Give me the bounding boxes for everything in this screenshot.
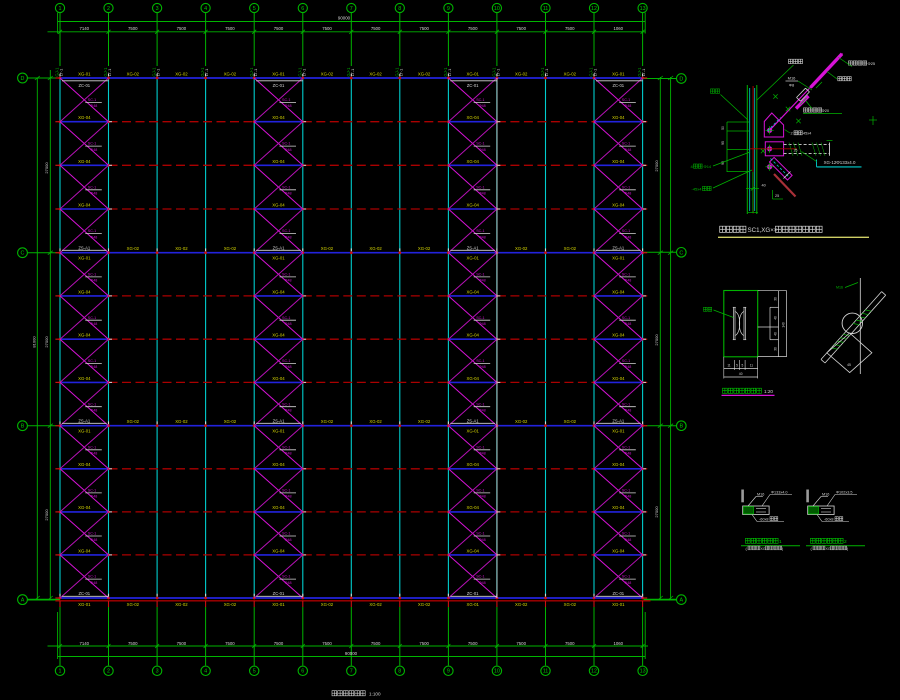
svg-text:SC-1: SC-1 [282,445,290,449]
svg-text:SC-1: SC-1 [88,402,96,406]
svg-text:): ) [847,547,849,551]
svg-text:SC-1: SC-1 [622,229,630,233]
svg-text:ZS-A1: ZS-A1 [273,418,286,423]
svg-text:SC-1: SC-1 [282,185,290,189]
svg-text:SC-1: SC-1 [622,359,630,363]
svg-text:Φ48: Φ48 [624,452,631,456]
svg-text:SC-1: SC-1 [476,445,484,449]
svg-text:XG-02: XG-02 [127,602,140,607]
svg-text:27000: 27000 [654,506,659,518]
svg-text:XG-01: XG-01 [612,602,625,607]
svg-text:Φ48: Φ48 [479,235,486,239]
svg-text:B: B [679,424,683,430]
svg-text:LT-1: LT-1 [253,68,258,76]
svg-text:27000: 27000 [44,509,49,521]
svg-text:XG-04: XG-04 [466,548,479,553]
svg-text:11: 11 [543,669,549,675]
svg-text:95: 95 [721,141,725,145]
svg-text:Φ48: Φ48 [479,495,486,499]
svg-text:SC-1: SC-1 [282,359,290,363]
svg-text:Φ48: Φ48 [90,279,97,283]
svg-text:XG-04: XG-04 [466,115,479,120]
svg-text:SC-1: SC-1 [622,445,630,449]
svg-text:SC-1: SC-1 [88,359,96,363]
svg-text:XG-02: XG-02 [369,246,382,251]
svg-text:SC-1: SC-1 [476,98,484,102]
svg-text:Φ48: Φ48 [624,104,631,108]
svg-text:LT-1: LT-1 [593,68,598,76]
svg-text:XG-04: XG-04 [272,376,285,381]
svg-text:Φ8: Φ8 [789,82,795,87]
svg-text:C: C [679,250,683,256]
svg-text:7500: 7500 [371,641,381,646]
svg-text:XG-04: XG-04 [78,462,91,467]
svg-text:SC-1: SC-1 [88,98,96,102]
svg-text:SC-1: SC-1 [88,445,96,449]
svg-text:D: D [679,77,683,83]
svg-text:9: 9 [447,669,450,675]
svg-text:XG-02: XG-02 [175,419,188,424]
svg-text:XG-02: XG-02 [175,71,188,76]
svg-text:XG-01: XG-01 [272,602,285,607]
svg-text:XG-02: XG-02 [418,246,431,251]
svg-text:9: 9 [447,6,450,12]
svg-text:Φ25: Φ25 [868,61,876,66]
svg-text:27000: 27000 [654,160,659,172]
svg-text:SC-1: SC-1 [88,273,96,277]
svg-text:XG-04: XG-04 [78,115,91,120]
svg-text:SC-1: SC-1 [476,575,484,579]
svg-text:Φ48: Φ48 [90,192,97,196]
svg-text:XG-01: XG-01 [78,602,91,607]
svg-text:ZS-A1: ZS-A1 [78,245,91,250]
svg-text:SC-1: SC-1 [476,185,484,189]
svg-text:XG-02: XG-02 [564,246,577,251]
svg-text:SC-1: SC-1 [476,316,484,320]
svg-text:XG-02: XG-02 [564,419,577,424]
svg-text:7500: 7500 [468,26,478,31]
svg-text:90000: 90000 [345,651,358,656]
svg-text:Φ48: Φ48 [624,148,631,152]
svg-text:5: 5 [742,364,744,368]
svg-text:SC-1: SC-1 [476,142,484,146]
svg-text:SC-1: SC-1 [476,532,484,536]
svg-text:Φ48: Φ48 [285,148,292,152]
svg-text:XG-04: XG-04 [272,333,285,338]
svg-text:XG-02: XG-02 [321,71,334,76]
svg-text:Φ14: Φ14 [704,164,712,169]
svg-text:13: 13 [640,669,646,675]
svg-text:C: C [21,251,25,257]
svg-text:1060: 1060 [614,641,624,646]
svg-text:Φ48: Φ48 [285,279,292,283]
svg-text:SC-1: SC-1 [282,273,290,277]
svg-text:11: 11 [727,364,731,368]
svg-text:Φ48: Φ48 [285,235,292,239]
svg-text:Φ48: Φ48 [479,452,486,456]
svg-text:SC-1: SC-1 [88,229,96,233]
svg-text:140: 140 [781,322,785,328]
svg-text:4: 4 [204,6,207,12]
svg-text:XG-02: XG-02 [224,602,237,607]
svg-text:SC-1: SC-1 [622,142,630,146]
svg-text:LT-1: LT-1 [447,68,452,76]
svg-text:7500: 7500 [468,641,478,646]
svg-text:Φ48: Φ48 [90,452,97,456]
svg-text:7500: 7500 [128,641,138,646]
svg-text:LT-1: LT-1 [398,68,403,76]
svg-text:SC-1: SC-1 [88,532,96,536]
svg-text:Φ48: Φ48 [479,192,486,196]
svg-text:1:20: 1:20 [764,389,773,394]
svg-text:XG-04: XG-04 [78,289,91,294]
svg-text:XG-02: XG-02 [321,602,334,607]
svg-text:SC1,XG××: SC1,XG×× [748,227,778,234]
svg-text:7500: 7500 [516,641,526,646]
svg-text:ZC-01: ZC-01 [612,83,624,88]
svg-text:XG-04: XG-04 [78,202,91,207]
svg-text:SC-1: SC-1 [622,532,630,536]
svg-text:Φ48: Φ48 [285,365,292,369]
svg-text:B: B [21,424,25,430]
svg-text:7500: 7500 [274,26,284,31]
svg-text:10: 10 [494,669,500,675]
svg-text:2: 2 [107,6,110,12]
svg-text:XG-02: XG-02 [515,419,528,424]
svg-text:7500: 7500 [322,641,332,646]
svg-text:SC-1: SC-1 [476,489,484,493]
svg-text:XG-04: XG-04 [272,115,285,120]
svg-text:Φ48: Φ48 [285,409,292,413]
svg-text:7500: 7500 [177,26,187,31]
svg-text:Φ48: Φ48 [624,235,631,239]
svg-text:Φ48: Φ48 [479,148,486,152]
svg-text:XG-02: XG-02 [224,419,237,424]
svg-text:3: 3 [156,669,159,675]
svg-text:XG-04: XG-04 [78,333,91,338]
svg-text:XG-02: XG-02 [515,602,528,607]
svg-text:7500: 7500 [225,26,235,31]
svg-text:SC-1: SC-1 [622,185,630,189]
svg-text:XG-04: XG-04 [612,115,625,120]
svg-text:): ) [782,547,784,551]
svg-text:XG-01: XG-01 [272,428,285,433]
svg-text:Φ48: Φ48 [624,322,631,326]
svg-text:Φ48: Φ48 [90,409,97,413]
svg-text:30: 30 [774,347,778,351]
svg-text:25: 25 [775,194,779,198]
svg-text:XG-01: XG-01 [272,255,285,260]
svg-text:7500: 7500 [419,641,429,646]
svg-text:Φ48: Φ48 [624,192,631,196]
svg-text:Φ48: Φ48 [90,495,97,499]
svg-text:40: 40 [739,372,743,376]
svg-text:Φ48: Φ48 [90,538,97,542]
svg-text:XG-04: XG-04 [272,289,285,294]
svg-text:SC-1: SC-1 [476,402,484,406]
svg-text:XG-02: XG-02 [418,71,431,76]
svg-text:ZS-A1: ZS-A1 [612,418,625,423]
svg-text:7500: 7500 [565,641,575,646]
svg-text:XG-04: XG-04 [272,548,285,553]
svg-text:SC-1: SC-1 [476,229,484,233]
svg-text:11: 11 [750,364,754,368]
svg-text:10: 10 [494,6,500,12]
svg-text:-60x8: -60x8 [759,517,769,521]
svg-text:XG-04: XG-04 [466,289,479,294]
svg-text:SC-1: SC-1 [622,316,630,320]
svg-text:SC-1: SC-1 [88,575,96,579]
svg-text:LT-1: LT-1 [641,68,646,76]
svg-text:81000: 81000 [31,336,36,348]
svg-text:7: 7 [350,6,353,12]
svg-text:50: 50 [721,126,725,130]
svg-text:ZS-A1: ZS-A1 [467,418,480,423]
svg-text:Φ48: Φ48 [285,538,292,542]
svg-text:2: 2 [844,539,847,545]
svg-text:SC-1: SC-1 [622,402,630,406]
svg-text:M16: M16 [836,286,843,290]
svg-text:SC-1: SC-1 [622,98,630,102]
svg-text:SC-1: SC-1 [622,575,630,579]
svg-text:27000: 27000 [44,336,49,348]
svg-text:XG-04: XG-04 [612,159,625,164]
svg-text:SC-1: SC-1 [282,316,290,320]
svg-text:XG-04: XG-04 [272,462,285,467]
svg-text:SC-1: SC-1 [282,142,290,146]
svg-text:7500: 7500 [565,26,575,31]
svg-text:XG-04: XG-04 [466,202,479,207]
svg-text:LT-1: LT-1 [350,68,355,76]
svg-text:XG-04: XG-04 [612,202,625,207]
svg-text:SC-1: SC-1 [282,575,290,579]
svg-text:5: 5 [253,6,256,12]
svg-text:XG-04: XG-04 [272,159,285,164]
svg-text:LT-1: LT-1 [59,68,64,76]
svg-text:8: 8 [398,669,401,675]
svg-text:4: 4 [691,164,694,169]
svg-text:A: A [21,598,25,604]
svg-text:ZS-A1: ZS-A1 [78,418,91,423]
svg-text:7140: 7140 [80,26,90,31]
svg-text:Φ102x3.5: Φ102x3.5 [836,490,853,494]
svg-text:XG-02: XG-02 [418,602,431,607]
svg-text:ZC-01: ZC-01 [78,83,90,88]
svg-text:XG-04: XG-04 [612,289,625,294]
svg-text:40: 40 [774,332,778,336]
svg-text:11: 11 [543,6,549,12]
svg-text:-60x8: -60x8 [824,517,834,521]
svg-text:XG-02: XG-02 [564,71,577,76]
svg-text:Φ48: Φ48 [479,538,486,542]
svg-text:Φ20: Φ20 [822,108,830,113]
svg-text:2: 2 [107,669,110,675]
svg-text:Φ48: Φ48 [90,322,97,326]
svg-text:M16: M16 [788,76,797,81]
svg-text:6: 6 [301,6,304,12]
svg-text:4: 4 [204,669,207,675]
svg-text:7500: 7500 [225,641,235,646]
svg-text:XG-04: XG-04 [466,159,479,164]
svg-text:Φ48: Φ48 [624,365,631,369]
svg-text:ZS-A1: ZS-A1 [612,245,625,250]
svg-text:1: 1 [59,6,62,12]
svg-text:XG-04: XG-04 [612,333,625,338]
svg-text:ZC-01: ZC-01 [273,83,285,88]
svg-text:Φ48: Φ48 [479,322,486,326]
svg-text:Φ48: Φ48 [90,365,97,369]
svg-text:Φ48: Φ48 [479,279,486,283]
svg-text:7500: 7500 [274,641,284,646]
svg-text:SC-1: SC-1 [282,402,290,406]
svg-text:45: 45 [847,363,851,367]
svg-text:XG-01: XG-01 [612,71,625,76]
svg-text:Φ48: Φ48 [285,192,292,196]
svg-text:XG-04: XG-04 [466,333,479,338]
svg-text:SC-1: SC-1 [282,489,290,493]
svg-text:XG-01: XG-01 [466,71,479,76]
svg-text:M16: M16 [757,492,764,496]
svg-text:A: A [679,598,683,604]
svg-text:XG-04: XG-04 [466,505,479,510]
svg-text:XG-04: XG-04 [78,159,91,164]
svg-text:XG-02: XG-02 [418,419,431,424]
svg-text:XG-02: XG-02 [127,246,140,251]
svg-text:27000: 27000 [44,162,49,174]
svg-text:7: 7 [350,669,353,675]
svg-text:Φ48: Φ48 [90,235,97,239]
svg-text:Φ48: Φ48 [624,495,631,499]
svg-text:SC-1: SC-1 [88,316,96,320]
svg-text:XG-04: XG-04 [466,462,479,467]
svg-text:SC-1: SC-1 [88,142,96,146]
svg-text:Φ48: Φ48 [90,581,97,585]
svg-text:LT-1: LT-1 [156,68,161,76]
svg-text:7500: 7500 [371,26,381,31]
svg-text:LT-1: LT-1 [301,68,306,76]
svg-text:SC-1: SC-1 [88,185,96,189]
svg-text:XG-01: XG-01 [466,602,479,607]
svg-text:XG-04: XG-04 [272,202,285,207]
svg-text:XG-02: XG-02 [369,71,382,76]
svg-text:7500: 7500 [516,26,526,31]
svg-text:XG-04: XG-04 [612,548,625,553]
svg-text:40: 40 [762,184,766,188]
svg-text:SC-1: SC-1 [282,98,290,102]
svg-text:Φ48: Φ48 [624,538,631,542]
svg-text:XG-01: XG-01 [466,255,479,260]
svg-text:LT-1: LT-1 [544,68,549,76]
svg-text:XG-02: XG-02 [224,71,237,76]
svg-text:LT-1: LT-1 [107,68,112,76]
svg-text:1: 1 [59,669,62,675]
svg-text:XG: XG [761,547,766,551]
svg-text:LT-1: LT-1 [204,68,209,76]
svg-text:XG-02: XG-02 [175,602,188,607]
svg-text:Φ48: Φ48 [624,279,631,283]
svg-text:ZC-01: ZC-01 [467,591,479,596]
svg-text:XG-04: XG-04 [612,376,625,381]
svg-text:Φ48: Φ48 [624,581,631,585]
svg-text:XG-02: XG-02 [321,246,334,251]
svg-text:-45x4: -45x4 [692,186,703,191]
svg-text:90000: 90000 [338,16,351,21]
svg-text:SC-1: SC-1 [282,229,290,233]
svg-text:XG-01: XG-01 [78,428,91,433]
svg-text:SC-1: SC-1 [476,359,484,363]
svg-text:1: 1 [779,539,782,545]
svg-text:ZC-01: ZC-01 [273,591,285,596]
svg-text:M16: M16 [822,492,829,496]
svg-text:Φ48: Φ48 [624,409,631,413]
svg-text:XG-02: XG-02 [127,71,140,76]
svg-text:Φ48: Φ48 [285,495,292,499]
svg-text:ZS-A1: ZS-A1 [467,245,480,250]
svg-text:7140: 7140 [80,641,90,646]
svg-text:Φ48: Φ48 [479,365,486,369]
svg-text:XG-02: XG-02 [224,246,237,251]
svg-text:Φ48: Φ48 [479,409,486,413]
svg-text:XG-02: XG-02 [127,419,140,424]
svg-text:ZS-A1: ZS-A1 [273,245,286,250]
svg-text:2: 2 [791,132,793,136]
svg-text:XG-04: XG-04 [272,505,285,510]
svg-text:XG-01: XG-01 [78,255,91,260]
svg-text:SC-1: SC-1 [282,532,290,536]
svg-text:5: 5 [736,364,738,368]
svg-text:12: 12 [591,6,597,12]
svg-text:7500: 7500 [128,26,138,31]
svg-text:XG-04: XG-04 [466,376,479,381]
svg-text:XG-02: XG-02 [175,246,188,251]
svg-text:13: 13 [640,6,646,12]
svg-text:SC-1: SC-1 [622,489,630,493]
svg-text:XG-02: XG-02 [369,602,382,607]
svg-text:XG-02: XG-02 [369,419,382,424]
svg-text:XG-02: XG-02 [321,419,334,424]
svg-text:Φ48: Φ48 [479,581,486,585]
svg-text:SC-1: SC-1 [88,489,96,493]
svg-text:D: D [21,76,25,82]
svg-text:45x4: 45x4 [803,132,811,136]
svg-text:ZC-01: ZC-01 [467,83,479,88]
svg-text:XG-01: XG-01 [612,255,625,260]
svg-text:Φ48: Φ48 [90,148,97,152]
svg-text:(: ( [746,547,748,551]
svg-text:XG: XG [826,547,831,551]
svg-text:6: 6 [301,669,304,675]
svg-text:Φ133x4.0: Φ133x4.0 [771,490,788,494]
svg-text:7500: 7500 [177,641,187,646]
svg-text:Φ48: Φ48 [285,322,292,326]
svg-text:3: 3 [156,6,159,12]
svg-text:27000: 27000 [654,334,659,346]
svg-text:XG-04: XG-04 [78,505,91,510]
svg-text:XG-02: XG-02 [564,602,577,607]
svg-text:8: 8 [398,6,401,12]
svg-text:1:100: 1:100 [369,691,381,696]
svg-text:ZC-01: ZC-01 [78,591,90,596]
svg-text:25: 25 [794,148,798,152]
svg-text:7500: 7500 [322,26,332,31]
svg-text:7500: 7500 [419,26,429,31]
svg-text:XG-04: XG-04 [78,548,91,553]
svg-text:XG-02: XG-02 [515,246,528,251]
svg-text:XG-04: XG-04 [612,462,625,467]
svg-text:Φ48: Φ48 [285,104,292,108]
svg-text:30: 30 [774,297,778,301]
svg-text:XG-01: XG-01 [78,71,91,76]
